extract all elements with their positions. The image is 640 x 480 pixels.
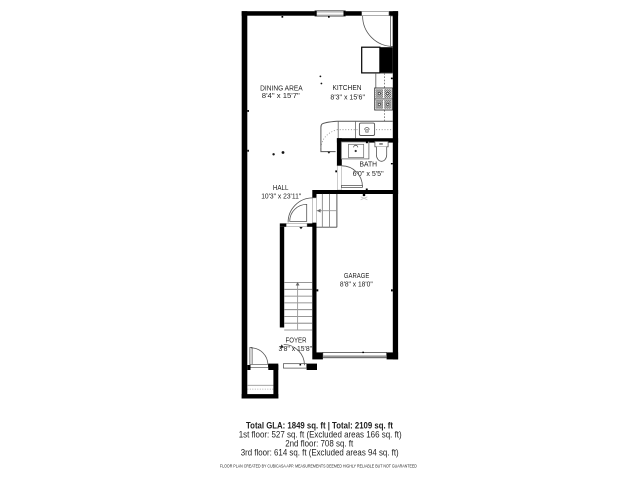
svg-text:10'3" x 23'11": 10'3" x 23'11" [261,193,302,200]
svg-text:GARAGE: GARAGE [344,271,369,280]
svg-text:DINING AREA: DINING AREA [260,83,303,92]
svg-text:HALL: HALL [273,183,289,192]
svg-text:KITCHEN: KITCHEN [333,83,362,92]
svg-text:8'8" x 18'0": 8'8" x 18'0" [340,282,373,289]
svg-text:BATH: BATH [360,159,378,168]
svg-text:6'0" x 5'5": 6'0" x 5'5" [353,171,385,178]
svg-text:3rd floor: 614 sq. ft (Exclude: 3rd floor: 614 sq. ft (Excluded areas 94… [241,448,399,458]
svg-text:FOYER: FOYER [286,335,307,344]
svg-text:3'8" x 15'8": 3'8" x 15'8" [279,346,313,353]
svg-text:FLOOR PLAN CREATED BY CUBICASA: FLOOR PLAN CREATED BY CUBICASA APP. MEAS… [220,463,417,468]
svg-text:8'4" x 15'7": 8'4" x 15'7" [262,93,301,100]
svg-text:8'3" x 15'6": 8'3" x 15'6" [330,94,365,101]
